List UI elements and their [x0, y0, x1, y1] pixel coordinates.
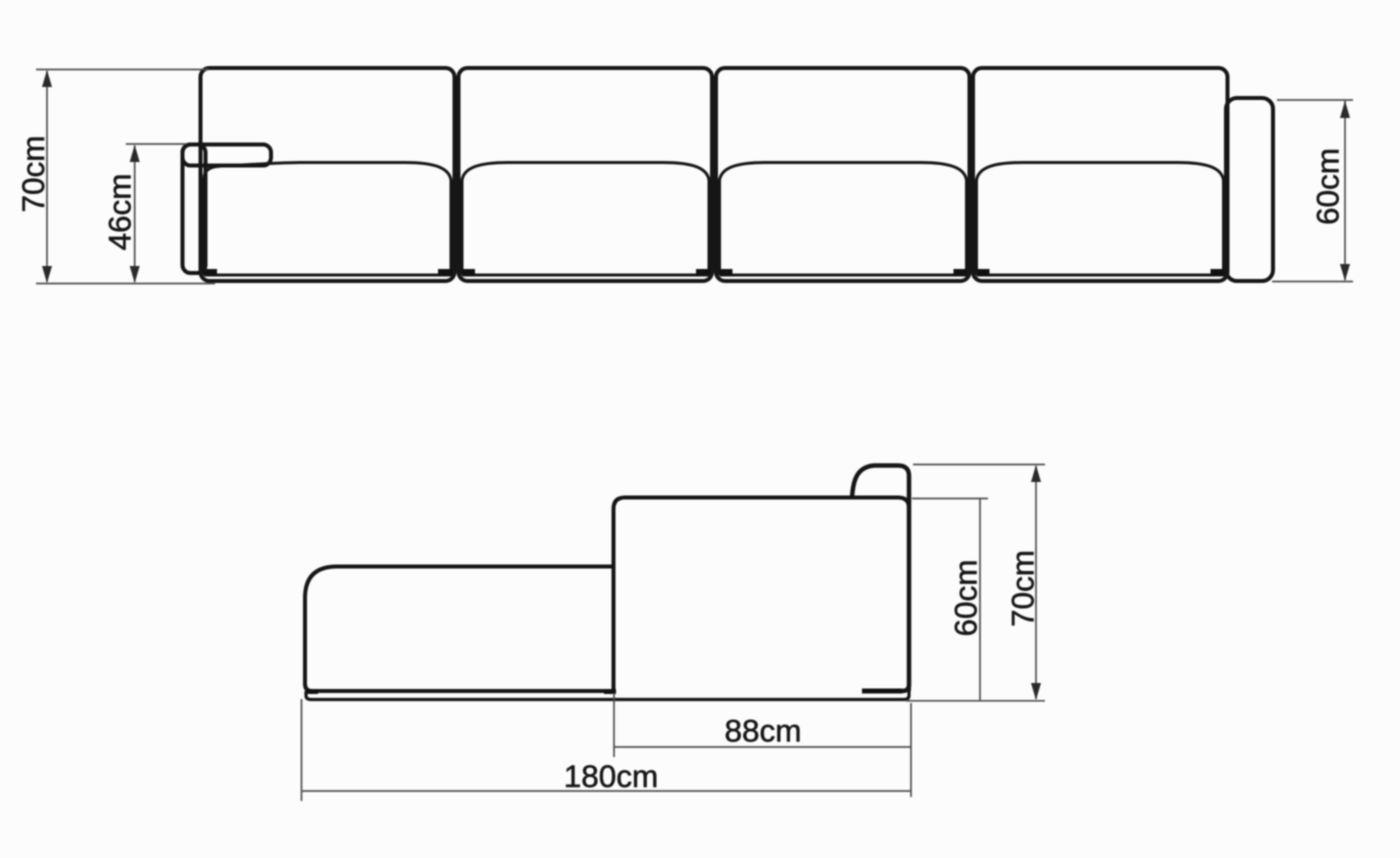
svg-text:88cm: 88cm — [724, 713, 801, 749]
svg-text:180cm: 180cm — [564, 758, 659, 794]
svg-text:46cm: 46cm — [102, 173, 138, 250]
svg-text:70cm: 70cm — [15, 135, 51, 212]
svg-text:70cm: 70cm — [1005, 550, 1041, 627]
svg-text:60cm: 60cm — [1310, 148, 1346, 225]
svg-text:60cm: 60cm — [948, 559, 984, 636]
